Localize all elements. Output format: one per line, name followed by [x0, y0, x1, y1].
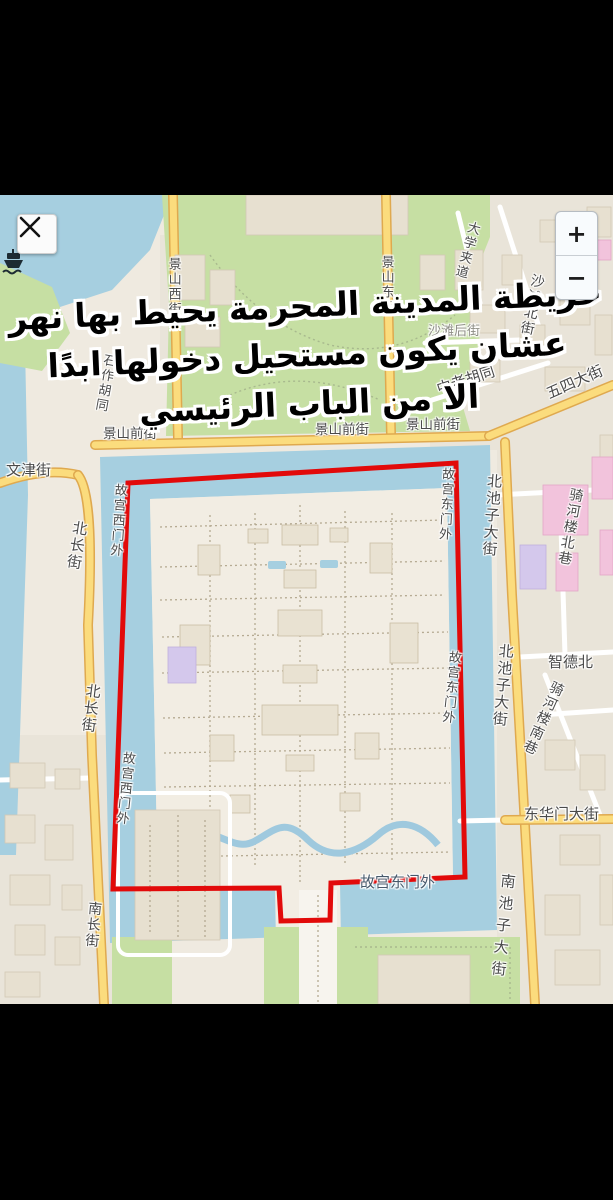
zoom-in-button[interactable]: +: [556, 212, 597, 255]
phone-frame: 景山前街 景山前街 景山前街 文津街 石作胡同 景山西街 景山东街 大学夹道 沙…: [0, 0, 613, 1200]
street-label: 智德北: [548, 655, 593, 671]
letterbox-top: [0, 0, 613, 195]
street-label: 东华门大街: [524, 807, 599, 823]
street-label: 故宫东门外: [436, 467, 454, 543]
close-button[interactable]: [17, 214, 57, 254]
street-label: 故宫东门外: [360, 875, 435, 891]
close-icon: [18, 215, 42, 239]
map-viewport[interactable]: 景山前街 景山前街 景山前街 文津街 石作胡同 景山西街 景山东街 大学夹道 沙…: [0, 195, 613, 1004]
zoom-control: + −: [555, 211, 598, 300]
letterbox-bottom: [0, 1004, 613, 1200]
street-label: 文津街: [6, 463, 51, 479]
street-label: 南长街: [83, 900, 102, 949]
zoom-out-button[interactable]: −: [556, 256, 597, 299]
caption-overlay: خريطة المدينة المحرمة يحيط بها نهر عشان …: [7, 268, 607, 441]
